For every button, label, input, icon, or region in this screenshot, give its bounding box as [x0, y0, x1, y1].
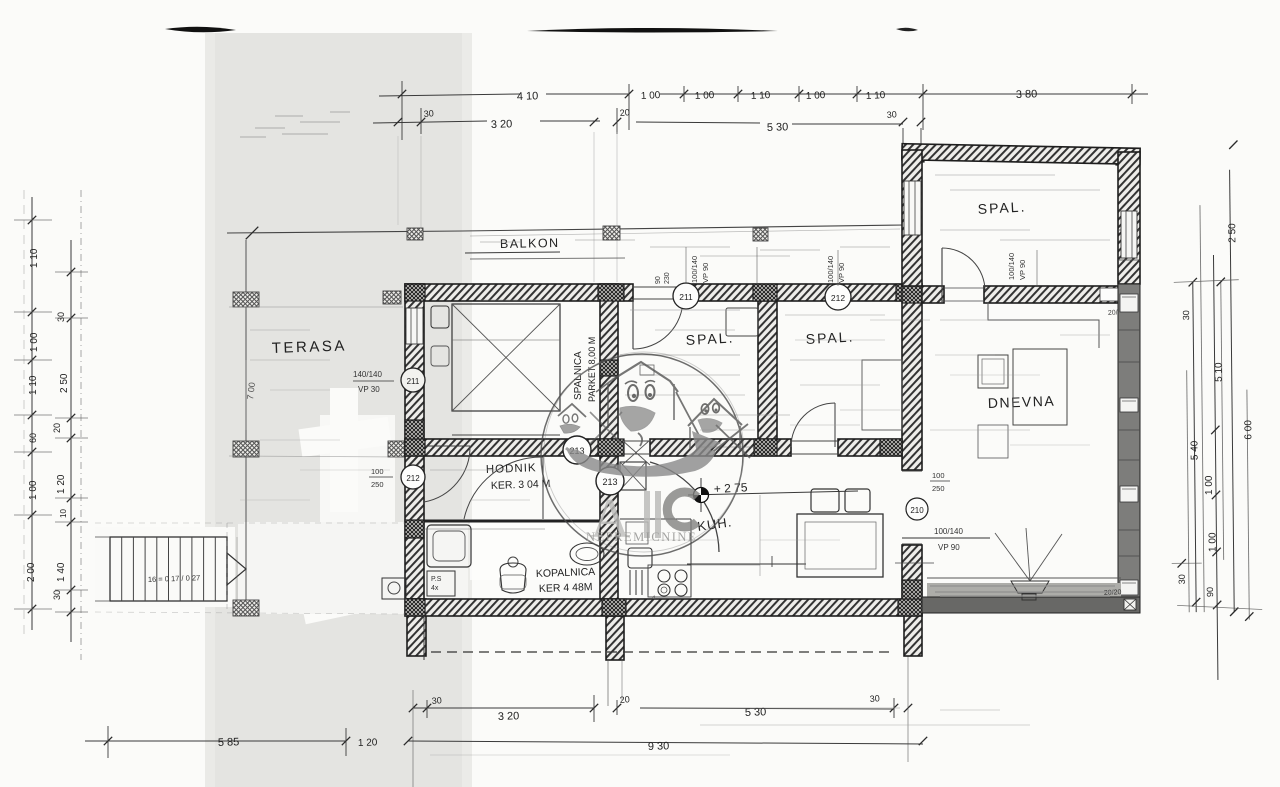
svg-text:SPALNICA: SPALNICA	[573, 351, 584, 400]
svg-text:2 50: 2 50	[1227, 223, 1238, 243]
svg-text:1 00: 1 00	[1207, 532, 1218, 552]
svg-text:140/140: 140/140	[353, 370, 382, 379]
svg-text:210: 210	[910, 506, 924, 515]
svg-text:P.S: P.S	[431, 576, 442, 583]
svg-text:7 00: 7 00	[245, 382, 257, 401]
svg-text:211: 211	[407, 377, 420, 386]
svg-text:1 10: 1 10	[751, 90, 771, 102]
svg-text:211: 211	[679, 292, 693, 302]
svg-text:BALKON: BALKON	[500, 236, 560, 251]
svg-text:3 20: 3 20	[498, 710, 520, 723]
svg-text:3 80: 3 80	[1016, 88, 1038, 101]
svg-text:VP 90: VP 90	[938, 543, 960, 552]
svg-text:100: 100	[932, 471, 945, 480]
svg-text:212: 212	[831, 293, 845, 303]
svg-text:1 00: 1 00	[1204, 475, 1215, 495]
svg-text:1 00: 1 00	[29, 332, 40, 352]
svg-text:KER. 3 04 M: KER. 3 04 M	[491, 478, 551, 492]
svg-text:VP 30: VP 30	[358, 385, 380, 394]
svg-text:1 00: 1 00	[28, 480, 39, 500]
svg-text:1 00: 1 00	[641, 90, 661, 102]
svg-text:30: 30	[869, 693, 880, 704]
svg-text:3 20: 3 20	[491, 118, 513, 131]
svg-text:VP 90: VP 90	[1018, 260, 1027, 280]
svg-text:16 = 0 17 / 0 27: 16 = 0 17 / 0 27	[148, 573, 201, 584]
svg-text:5 40: 5 40	[1189, 440, 1200, 460]
svg-text:100/140: 100/140	[1007, 253, 1016, 280]
svg-text:9 30: 9 30	[648, 740, 670, 753]
svg-text:5 10: 5 10	[1214, 362, 1225, 382]
svg-text:20: 20	[619, 694, 630, 705]
svg-text:30: 30	[52, 590, 62, 600]
svg-text:6 00: 6 00	[1243, 420, 1254, 440]
svg-text:20: 20	[52, 423, 62, 433]
svg-text:1 20: 1 20	[358, 737, 378, 749]
svg-text:5 30: 5 30	[767, 121, 789, 134]
svg-text:NEPREMICNINE: NEPREMICNINE	[586, 530, 697, 544]
svg-text:100: 100	[371, 467, 384, 476]
svg-text:5 85: 5 85	[218, 736, 240, 749]
svg-text:1 10: 1 10	[866, 90, 886, 102]
svg-text:30: 30	[1181, 310, 1191, 320]
svg-text:KOPALNICA: KOPALNICA	[536, 566, 596, 580]
svg-text:100/140: 100/140	[934, 527, 963, 536]
svg-text:1 40: 1 40	[56, 562, 67, 582]
svg-text:1 10: 1 10	[28, 375, 39, 395]
svg-text:2 00: 2 00	[26, 562, 37, 582]
svg-text:100/140: 100/140	[826, 256, 835, 283]
svg-text:90: 90	[655, 276, 662, 284]
svg-text:30: 30	[431, 695, 442, 706]
svg-text:1 20: 1 20	[56, 474, 67, 494]
svg-text:KER 4 48M: KER 4 48M	[539, 581, 593, 595]
svg-text:SPAL.: SPAL.	[805, 328, 854, 347]
svg-text:2 50: 2 50	[59, 373, 70, 393]
svg-text:+ 2 75: + 2 75	[713, 480, 748, 496]
svg-text:4x: 4x	[431, 585, 439, 592]
svg-text:212: 212	[406, 474, 420, 483]
svg-text:TERASA: TERASA	[272, 337, 348, 357]
svg-text:HODNIK: HODNIK	[486, 462, 537, 476]
svg-text:20: 20	[619, 107, 630, 118]
svg-text:1 00: 1 00	[695, 90, 715, 102]
svg-text:250: 250	[371, 480, 384, 489]
svg-text:60: 60	[28, 433, 38, 443]
svg-text:SPAL.: SPAL.	[977, 198, 1026, 217]
svg-text:DNEVNA: DNEVNA	[988, 393, 1056, 411]
svg-text:SPAL.: SPAL.	[685, 329, 734, 348]
svg-text:VP 90: VP 90	[701, 263, 710, 283]
svg-text:1 00: 1 00	[806, 90, 826, 102]
svg-text:213: 213	[602, 477, 617, 487]
svg-text:250: 250	[932, 484, 945, 493]
svg-text:1 10: 1 10	[29, 248, 40, 268]
svg-text:90: 90	[1205, 587, 1215, 597]
svg-text:30: 30	[56, 312, 66, 322]
svg-text:30: 30	[1177, 574, 1187, 584]
svg-text:10: 10	[59, 509, 68, 518]
svg-text:30: 30	[886, 109, 897, 120]
svg-text:4 10: 4 10	[517, 90, 539, 103]
svg-text:230: 230	[664, 272, 671, 284]
svg-text:30: 30	[423, 108, 434, 119]
svg-text:100/140: 100/140	[690, 256, 699, 283]
